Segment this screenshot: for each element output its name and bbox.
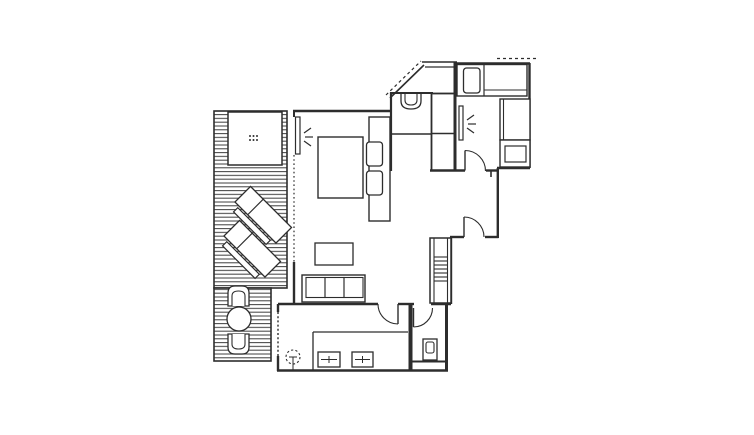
wall-mirror [459, 106, 463, 140]
coffee-table [315, 243, 353, 265]
round-table [227, 307, 251, 331]
floor-plan-page [0, 0, 754, 435]
wall-mirror [296, 117, 301, 154]
patio-table [228, 112, 282, 165]
desk [500, 99, 530, 140]
double-bed-mattress [318, 137, 363, 198]
pillow [464, 68, 481, 93]
double-bed-headboard [369, 117, 390, 221]
stairs [430, 238, 451, 303]
pillow [367, 171, 383, 195]
patio-chair-top [228, 286, 249, 306]
pillow [367, 142, 383, 166]
patio-chair-bottom [228, 334, 249, 354]
floor-plan-canvas [0, 0, 754, 435]
sofa [302, 275, 365, 302]
